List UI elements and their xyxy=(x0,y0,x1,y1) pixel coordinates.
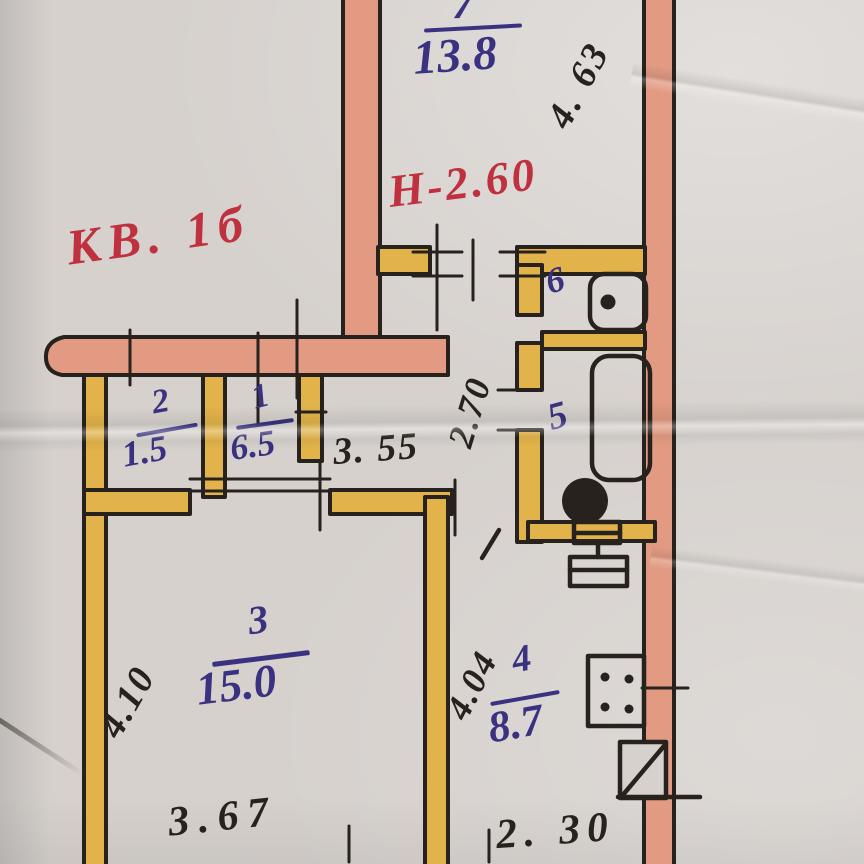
wall-room1-corridor xyxy=(299,375,322,461)
floor-plan-scan: 7 13.8 4. 63 Н-2.60 КВ. 1б 2 1.5 1 6.5 3… xyxy=(0,0,864,864)
dim-2-30: 2. 30 xyxy=(495,806,617,856)
room7-area: 13.8 xyxy=(411,29,498,83)
wall-hall-bath-1 xyxy=(517,265,542,315)
wall-room3-kitchen xyxy=(425,497,448,864)
wall-room7-left xyxy=(343,0,380,342)
stove-icon xyxy=(588,656,644,726)
wall-hall-bath-2 xyxy=(517,343,542,390)
room4-area: 8.7 xyxy=(485,698,547,751)
room2-area: 1.5 xyxy=(119,429,170,472)
wall-left-vertical xyxy=(84,375,106,864)
washbasin-icon xyxy=(590,274,646,330)
room7-number: 7 xyxy=(452,0,474,26)
wall-room3-top-left xyxy=(84,490,190,514)
room1-area: 6.5 xyxy=(228,424,278,466)
dim-3-55: 3. 55 xyxy=(332,427,420,471)
wall-wc-bath-divider xyxy=(542,332,645,349)
balcony-door-icon xyxy=(618,742,700,798)
kitchen-sink-icon xyxy=(570,543,627,586)
room3-area: 15.0 xyxy=(193,657,279,712)
bathtub-icon xyxy=(592,356,650,480)
kitchen-door-leaf xyxy=(482,530,499,558)
dim-3-67: 3.67 xyxy=(166,790,279,843)
wall-top-left-horizontal xyxy=(46,337,448,375)
